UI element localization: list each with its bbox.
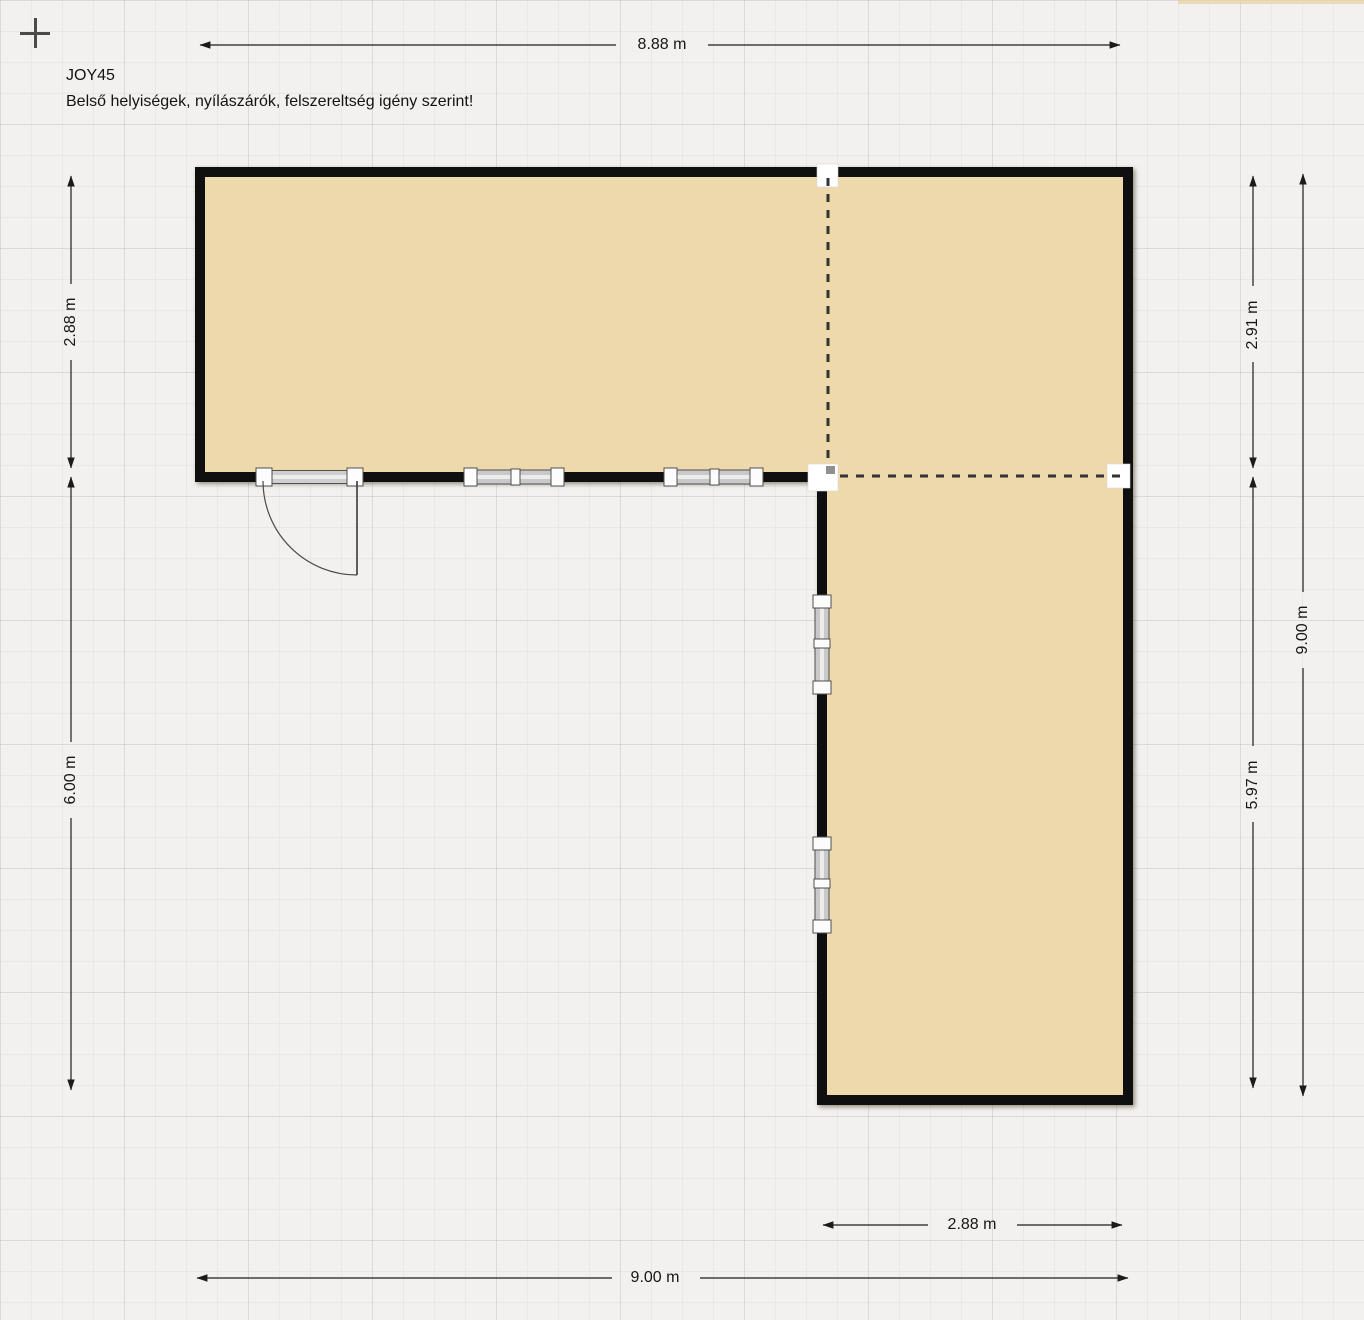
door-frame-cap-right	[347, 468, 363, 486]
window-south-2[interactable]	[664, 468, 763, 486]
dimension-label-bottom-wing-width[interactable]: 2.88 m	[948, 1216, 997, 1234]
door-frame-cap-left	[256, 468, 272, 486]
window-west-2[interactable]	[813, 837, 831, 933]
wall-junction-marker-inner-corner-handle[interactable]	[826, 466, 835, 474]
door[interactable]	[256, 468, 363, 575]
floor-plan-canvas: JOY45 Belső helyiségek, nyílászárók, fel…	[0, 0, 1364, 1320]
dimension-label-right-total-height[interactable]: 9.00 m	[1294, 606, 1312, 655]
window-west-1[interactable]	[813, 595, 831, 694]
window-south-1[interactable]	[464, 468, 564, 486]
dimension-label-top-width[interactable]: 8.88 m	[638, 36, 687, 54]
dimension-label-left-upper-height[interactable]: 2.88 m	[62, 298, 80, 347]
dimension-label-right-lower-height[interactable]: 5.97 m	[1244, 761, 1262, 810]
dimension-label-bottom-total-width[interactable]: 9.00 m	[631, 1269, 680, 1287]
plan-drawing	[0, 0, 1364, 1320]
door-swing-arc	[263, 481, 357, 575]
dimension-label-left-lower-height[interactable]: 6.00 m	[62, 756, 80, 805]
dimension-label-right-upper-height[interactable]: 2.91 m	[1244, 301, 1262, 350]
building-walls[interactable]	[200, 172, 1128, 1100]
